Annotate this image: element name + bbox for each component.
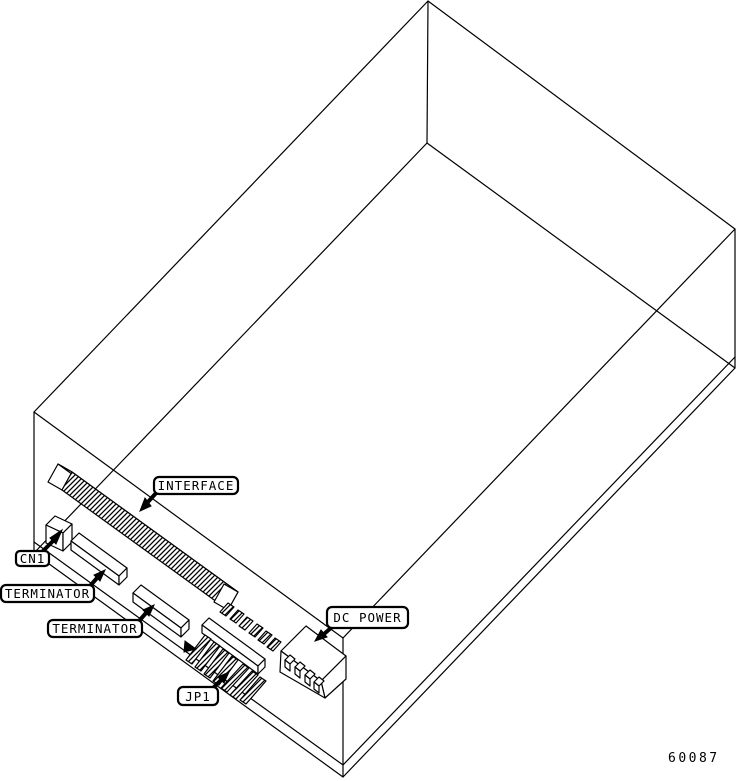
- terminator-top-label: TERMINATOR: [5, 586, 90, 601]
- chassis-wireframe: [34, 1, 735, 777]
- callout-dc-power: DC POWER: [315, 607, 408, 641]
- cn1-label: CN1: [20, 551, 46, 566]
- dc-power-connector: [280, 626, 346, 698]
- pcb-edge-line: [34, 357, 735, 765]
- jp1-label: JP1: [185, 689, 211, 704]
- callout-terminator-bottom: TERMINATOR: [48, 605, 154, 637]
- callout-interface: INTERFACE: [140, 477, 238, 511]
- chassis-bottom-face-edges: [34, 143, 735, 777]
- figure-canvas: INTERFACE CN1 TERMINATOR TERMINATOR JP1 …: [0, 0, 736, 781]
- drive-connector-diagram: INTERFACE CN1 TERMINATOR TERMINATOR JP1 …: [0, 0, 736, 781]
- dc-power-label: DC POWER: [333, 610, 401, 625]
- figure-number: 60087: [668, 751, 720, 766]
- interface-label: INTERFACE: [158, 478, 235, 493]
- chassis-vertical-edges: [34, 1, 735, 777]
- callout-terminator-top: TERMINATOR: [1, 570, 105, 602]
- terminator-bottom-label: TERMINATOR: [52, 621, 137, 636]
